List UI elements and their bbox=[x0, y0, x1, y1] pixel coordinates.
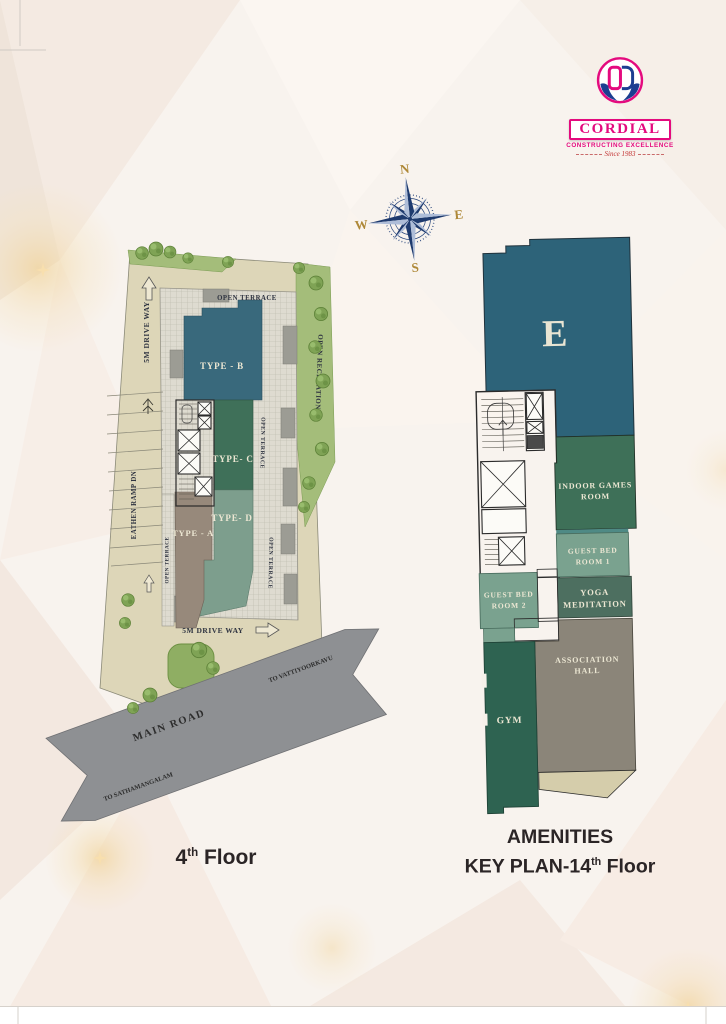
tower-e-label: E bbox=[542, 313, 568, 356]
open-terrace-left-label: OPEN TERRACE bbox=[165, 536, 171, 583]
logo-since: Since 1983 bbox=[605, 150, 636, 158]
indoor-games-label-2: ROOM bbox=[581, 492, 610, 502]
compass-north-label: N bbox=[399, 161, 411, 177]
caption-floor-number: 4 bbox=[176, 846, 188, 869]
gym-notch bbox=[481, 674, 486, 688]
brochure-page: N E S W CORDIAL CONSTRUCTING EXCELLENCE … bbox=[0, 0, 726, 1024]
entry-wedge bbox=[539, 770, 637, 799]
drive-way-bottom-label: 5M DRIVE WAY bbox=[182, 626, 244, 635]
gym-room bbox=[484, 641, 539, 813]
compass-west-label: W bbox=[354, 216, 368, 232]
guest1-label-2: ROOM 1 bbox=[576, 557, 611, 567]
cordial-logo: CORDIAL CONSTRUCTING EXCELLENCE Since 19… bbox=[563, 56, 677, 158]
left-floor-plan: TYPE - B TYPE- C TYPE- D TYPE - A OPEN T… bbox=[40, 238, 400, 838]
compass-south-label: S bbox=[411, 259, 420, 275]
stair-lift-core-right bbox=[476, 390, 559, 579]
key-plan-floor-word: Floor bbox=[601, 856, 655, 878]
association-hall bbox=[534, 618, 635, 772]
type-d-label: TYPE- D bbox=[211, 513, 252, 523]
guest1-label-1: GUEST BED bbox=[568, 546, 618, 556]
caption-ordinal: th bbox=[187, 847, 198, 859]
type-c-unit bbox=[214, 400, 253, 490]
right-plan-caption: AMENITIES KEY PLAN-14th Floor bbox=[448, 825, 672, 880]
tree-icon bbox=[143, 688, 157, 702]
indoor-games-label-1: INDOOR GAMES bbox=[558, 480, 632, 491]
caption-floor-word: Floor bbox=[198, 846, 256, 869]
guest2-label-1: GUEST BED bbox=[484, 590, 534, 600]
hall-label-1: ASSOCIATION bbox=[555, 655, 619, 665]
left-plan-caption: 4th Floor bbox=[126, 846, 306, 870]
gym-label: GYM bbox=[497, 716, 523, 727]
gym-notch bbox=[482, 714, 487, 726]
logo-name: CORDIAL bbox=[569, 119, 670, 140]
right-key-plan: E bbox=[455, 232, 655, 832]
open-terrace-right-lower-label: OPEN TERRACE bbox=[267, 537, 274, 589]
guest2-step bbox=[483, 628, 514, 643]
type-a-label: TYPE - A bbox=[172, 528, 214, 538]
yoga-label-1: YOGA bbox=[580, 587, 609, 598]
compass-east-label: E bbox=[454, 206, 464, 222]
key-plan-ordinal: th bbox=[591, 856, 601, 868]
open-terrace-right-upper-label: OPEN TERRACE bbox=[259, 417, 266, 469]
tree-icon bbox=[127, 702, 138, 713]
yoga-meditation-room bbox=[557, 576, 632, 618]
cordial-logo-mark-icon bbox=[590, 56, 650, 112]
guest2-label-2: ROOM 2 bbox=[492, 601, 527, 611]
hall-label-2: HALL bbox=[574, 666, 600, 676]
type-c-label: TYPE- C bbox=[212, 454, 253, 464]
drive-way-left-label: 5M DRIVE WAY bbox=[142, 301, 151, 363]
key-plan-title: KEY PLAN-14th Floor bbox=[448, 850, 672, 880]
yoga-label-2: MEDITATION bbox=[563, 598, 627, 609]
logo-tagline: CONSTRUCTING EXCELLENCE bbox=[563, 142, 677, 149]
logo-since-row: Since 1983 bbox=[563, 150, 677, 158]
ramp-label: EATHEN RAMP DN bbox=[131, 471, 138, 539]
type-b-label: TYPE - B bbox=[200, 361, 244, 371]
key-plan-text: KEY PLAN-14 bbox=[465, 856, 591, 878]
amenities-title: AMENITIES bbox=[448, 825, 672, 850]
open-terrace-top-label: OPEN TERRACE bbox=[217, 295, 277, 302]
page-bottom-band bbox=[0, 1007, 726, 1024]
